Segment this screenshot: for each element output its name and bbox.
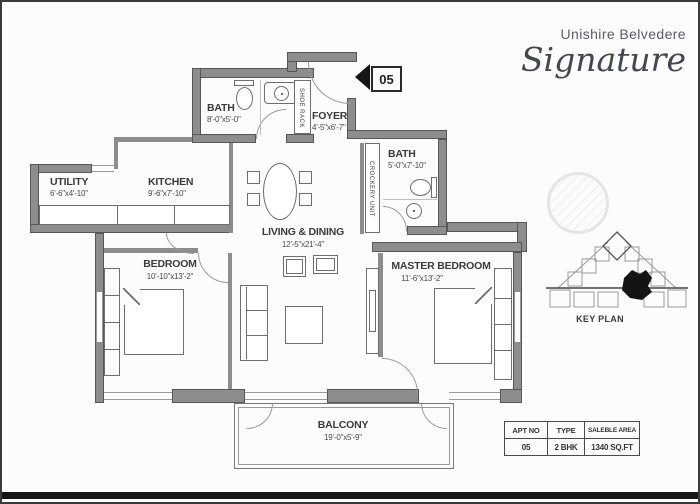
kitchen-counter-divider-1 [117,205,118,225]
room-dims-utility: 6'-6"x4'-10" [50,189,88,198]
header-type: TYPE [548,422,585,439]
door-arc-master [382,358,418,394]
door-arc-bedroom [198,253,228,283]
wall-master-bottom-right [500,389,522,403]
accent-chair-1-inner [286,259,303,274]
tv-screen [369,290,376,332]
room-label-master: MASTER BEDROOM [391,260,490,272]
master-wardrobe-div-3 [494,350,512,351]
room-dims-balcony: 19'-0"x5'-9" [324,433,362,442]
wall-kitchen-bottom [30,224,233,233]
wall-bath2-right [438,139,447,234]
room-label-foyer: FOYER [312,110,347,122]
wall-bedroom-bottom [172,389,245,403]
wall-niche-step [447,222,527,232]
room-dims-master: 11'-6"x13'-2" [401,274,443,283]
entry-unit-number: 05 [371,66,402,92]
master-wardrobe-div-1 [494,298,512,299]
dining-table [263,163,297,220]
crockery-unit-label: CROCKERY UNIT [368,148,374,230]
toilet-bowl-bath2 [410,179,431,196]
apartment-summary-table: APT NO TYPE SALEBLE AREA 05 2 BHK 1340 S… [504,421,640,456]
master-bed-fold [475,287,492,304]
wall-master-top [372,242,522,252]
dining-chair-1 [247,171,260,184]
coffee-table [285,306,323,344]
washbasin-drain-bath2 [413,210,415,212]
floor-plan-sheet: Unishire Belvedere Signature [0,0,700,504]
sofa-cushion-line-1 [247,310,267,311]
wall-bath1-bottom-left [192,134,256,143]
entry-arrow-icon [355,64,370,90]
window-living-bottom [245,392,327,400]
bath1-partition-line [260,80,261,135]
room-dims-bath1: 8'-0"x5'-0" [207,115,241,124]
room-dims-living: 12'-5"x21'-4" [282,240,324,249]
room-label-utility: UTILITY [50,176,88,188]
shoe-rack-label: SHOE RACK [298,84,304,132]
accent-chair-2-inner [316,258,335,271]
room-label-balcony: BALCONY [318,419,369,431]
kitchen-counter [39,205,230,225]
room-label-living: LIVING & DINING [262,226,344,238]
dining-chair-4 [299,193,312,206]
room-dims-bedroom: 10'-10"x13'-2" [147,272,193,281]
summary-value-row: 05 2 BHK 1340 SQ.FT [505,439,640,456]
room-dims-foyer: 4'-5"x6'-7" [312,123,346,132]
value-apt-no: 05 [505,439,548,456]
toilet-bowl-bath1 [236,87,253,110]
header-apt-no: APT NO [505,422,548,439]
toilet-tank-bath2 [431,177,437,198]
window-master-right [514,292,521,342]
key-plan-label: KEY PLAN [576,314,624,324]
window-master-bottom [449,392,500,400]
door-arc-entry [308,62,350,104]
dining-chair-3 [299,171,312,184]
wall-utility-left [30,164,39,233]
wall-bath2-bottom [407,226,447,235]
room-label-kitchen: KITCHEN [148,176,193,188]
window-bedroom-bottom [104,392,172,400]
dining-chair-2 [247,193,260,206]
bedroom-bed-fold [123,288,140,305]
wall-bath1-bottom-right [286,134,314,143]
master-wardrobe-div-2 [494,324,512,325]
header-saleble-area: SALEBLE AREA [585,422,640,439]
brand-logotype: Signature [422,40,686,79]
wall-kitchen-left [114,142,118,169]
room-label-bath1: BATH [207,102,235,114]
sofa-cushion-line-2 [247,335,267,336]
room-label-bedroom: BEDROOM [143,258,196,270]
wall-bedroom-right [228,253,232,393]
room-label-bath2: BATH [388,148,416,160]
window-utility-top [92,165,114,172]
kitchen-counter-divider-2 [174,205,175,225]
sofa-back-line [246,287,247,359]
value-saleble-area: 1340 SQ.FT [585,439,640,456]
wall-kitchen-top [114,137,192,142]
wall-foyer-top [287,52,357,62]
washbasin-drain-bath1 [281,93,283,95]
window-bedroom-left [96,292,103,342]
sheet-footer-bar [2,492,698,499]
bedroom-wardrobe-div-2 [104,322,120,323]
bedroom-wardrobe-div-3 [104,349,120,350]
summary-header-row: APT NO TYPE SALEBLE AREA [505,422,640,439]
room-dims-bath2: 5'-0"x7'-10" [388,161,426,170]
bedroom-wardrobe-div-1 [104,295,120,296]
wall-crockery-back [360,143,364,234]
door-arc-bath2 [383,206,407,231]
wall-utility-top [30,164,92,173]
toilet-tank-bath1 [234,80,254,86]
wall-bath1-left [192,68,201,143]
room-dims-kitchen: 9'-6"x7'-10" [148,189,186,198]
developer-watermark-logo [547,172,609,234]
key-plan-diagram [540,228,694,312]
wall-hall-top [347,130,447,139]
bath2-partition-line [383,199,437,200]
sofa [240,285,268,361]
value-type: 2 BHK [548,439,585,456]
